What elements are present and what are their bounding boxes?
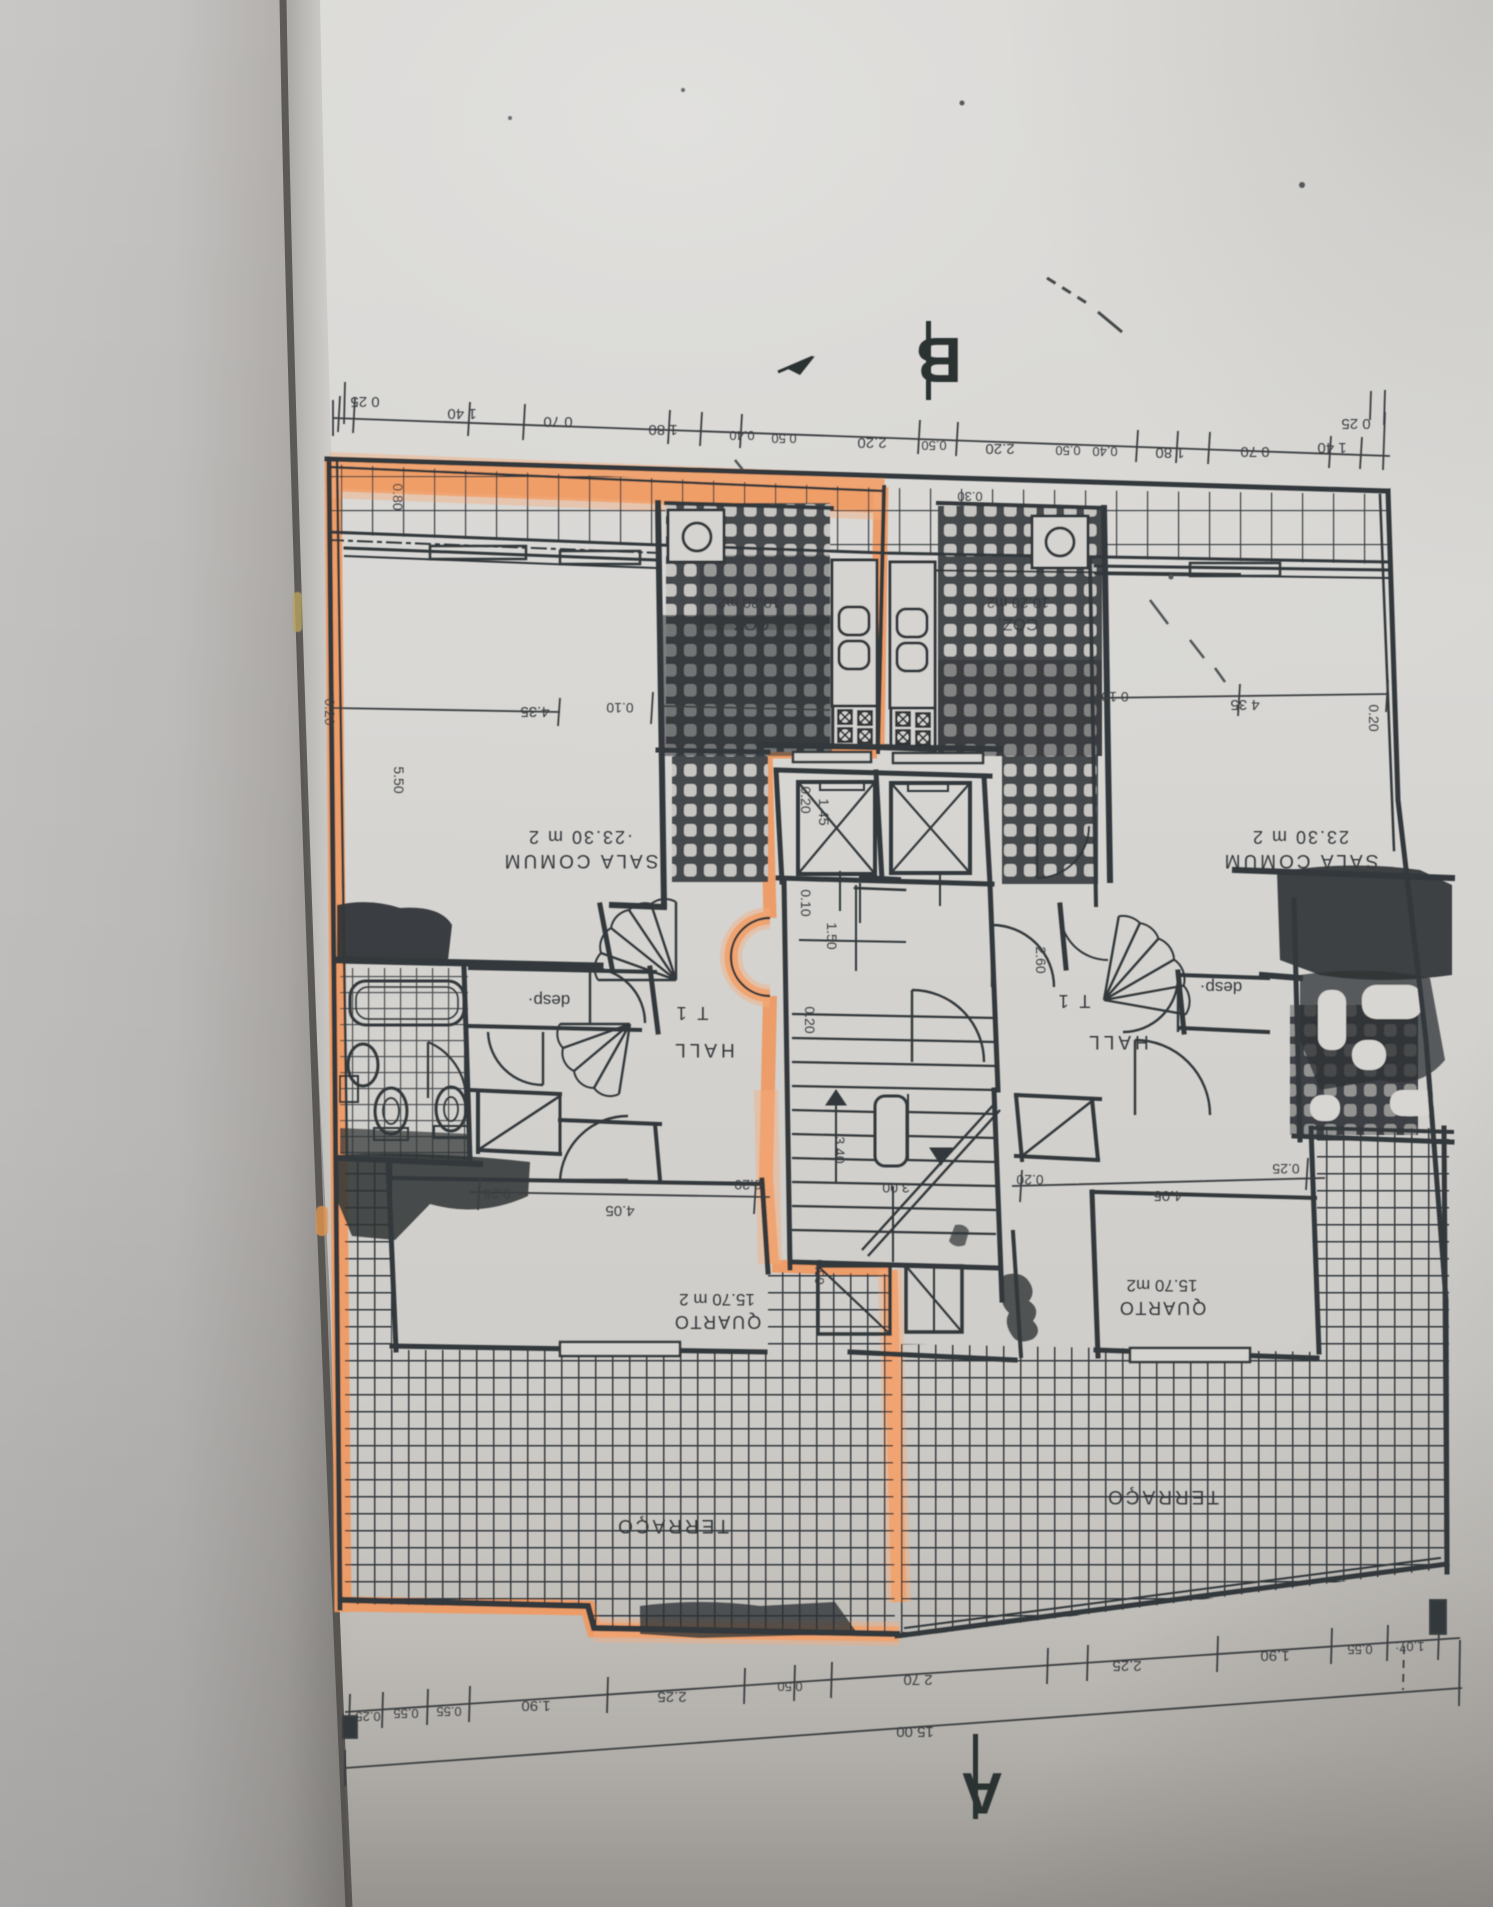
svg-text:2.20: 2.20 (985, 440, 1014, 457)
svg-text:15.00: 15.00 (896, 1723, 934, 1740)
svg-text:2.25: 2.25 (657, 1688, 686, 1705)
svg-text:1.90: 1.90 (521, 1697, 550, 1714)
svg-text:4.05: 4.05 (1153, 1187, 1182, 1204)
svg-text:TERRAÇO: TERRAÇO (1105, 1486, 1219, 1507)
svg-text:0.20: 0.20 (798, 786, 814, 813)
svg-text:1.07:: 1.07: (1396, 1639, 1425, 1654)
svg-text:desp·: desp· (1200, 978, 1243, 997)
svg-text:HALL: HALL (671, 1039, 735, 1060)
svg-text:2.20: 2.20 (857, 434, 886, 451)
svg-text:0.10: 0.10 (606, 700, 633, 716)
svg-text:desp·: desp· (528, 991, 571, 1010)
svg-text:1 80: 1 80 (648, 421, 677, 438)
svg-text:0.55: 0.55 (393, 1706, 418, 1721)
svg-text:1 40: 1 40 (1317, 439, 1346, 456)
svg-text:0.25: 0.25 (355, 1709, 380, 1724)
svg-text:10.20 m2: 10.20 m2 (987, 594, 1050, 611)
svg-text:QUARTO: QUARTO (1118, 1298, 1206, 1318)
svg-text:SALA COMUM: SALA COMUM (502, 850, 659, 871)
svg-text:0.20: 0.20 (322, 698, 338, 725)
svg-text:3.00: 3.00 (882, 1180, 909, 1196)
svg-text:0.50: 0.50 (777, 1679, 802, 1694)
svg-text:0.25: 0.25 (483, 1186, 510, 1202)
svg-text:0.50: 0.50 (921, 438, 946, 453)
svg-text:0.50: 0.50 (771, 431, 796, 446)
svg-text:0 25: 0 25 (350, 393, 379, 410)
svg-text:15.70 m2: 15.70 m2 (1127, 1276, 1198, 1295)
svg-text:0.20: 0.20 (734, 1177, 761, 1193)
svg-text:0 25: 0 25 (1341, 415, 1370, 432)
svg-text:0.20: 0.20 (802, 1006, 818, 1033)
svg-text:TERRAÇO: TERRAÇO (615, 1515, 729, 1536)
svg-text:0.80: 0.80 (390, 483, 406, 510)
svg-text:2.60: 2.60 (1033, 946, 1049, 973)
svg-text:4.05: 4.05 (605, 1202, 634, 1219)
svg-text:5.50: 5.50 (391, 766, 407, 793)
svg-text:COZ.: COZ. (729, 615, 770, 634)
svg-text:1 40: 1 40 (447, 405, 476, 422)
svg-text:T 1: T 1 (674, 1003, 709, 1023)
svg-text:1.90: 1.90 (1260, 1647, 1289, 1664)
svg-text:0 70: 0 70 (543, 413, 572, 430)
svg-text:0.40: 0.40 (729, 428, 754, 443)
svg-text:15.70 m 2: 15.70 m 2 (679, 1290, 755, 1309)
svg-text:QUARTO: QUARTO (673, 1312, 761, 1332)
svg-text:0.10: 0.10 (798, 889, 814, 916)
svg-text:3.40: 3.40 (832, 1136, 848, 1163)
svg-text:0.30: 0.30 (957, 489, 982, 504)
svg-text:0.90: 0.90 (812, 1259, 827, 1284)
svg-text:4.35: 4.35 (520, 703, 549, 720)
svg-text:COZ.: COZ. (998, 615, 1039, 634)
svg-text:SALA COMUM: SALA COMUM (1222, 850, 1379, 871)
svg-text:0 70: 0 70 (1240, 443, 1269, 460)
svg-text:1 80: 1 80 (1155, 444, 1184, 461)
svg-text:0.40: 0.40 (1092, 444, 1117, 459)
svg-text:2.25: 2.25 (1112, 1657, 1141, 1674)
svg-text:HALL: HALL (1085, 1031, 1149, 1052)
svg-text:10.20 m2: 10.20 m2 (718, 594, 781, 611)
svg-text:0 10: 0 10 (1101, 689, 1128, 705)
svg-text:23.30 m 2: 23.30 m 2 (1251, 827, 1349, 847)
svg-text:B: B (916, 324, 962, 396)
svg-text:0.55: 0.55 (1347, 1642, 1372, 1657)
svg-text:1.50: 1.50 (824, 922, 840, 949)
svg-text:·23.30 m 2: ·23.30 m 2 (527, 827, 633, 847)
svg-text:1.45: 1.45 (816, 798, 832, 825)
svg-text:2 70: 2 70 (903, 1671, 932, 1688)
svg-text:0.20: 0.20 (1016, 1172, 1043, 1188)
svg-text:A: A (961, 1760, 1003, 1825)
svg-text:T 1: T 1 (1056, 991, 1091, 1011)
svg-text:4 35: 4 35 (1230, 696, 1259, 713)
svg-text:0.20: 0.20 (1366, 704, 1382, 731)
svg-text:0.25: 0.25 (1272, 1161, 1299, 1177)
svg-text:0.50: 0.50 (1055, 443, 1080, 458)
svg-text:0.55: 0.55 (436, 1704, 461, 1719)
